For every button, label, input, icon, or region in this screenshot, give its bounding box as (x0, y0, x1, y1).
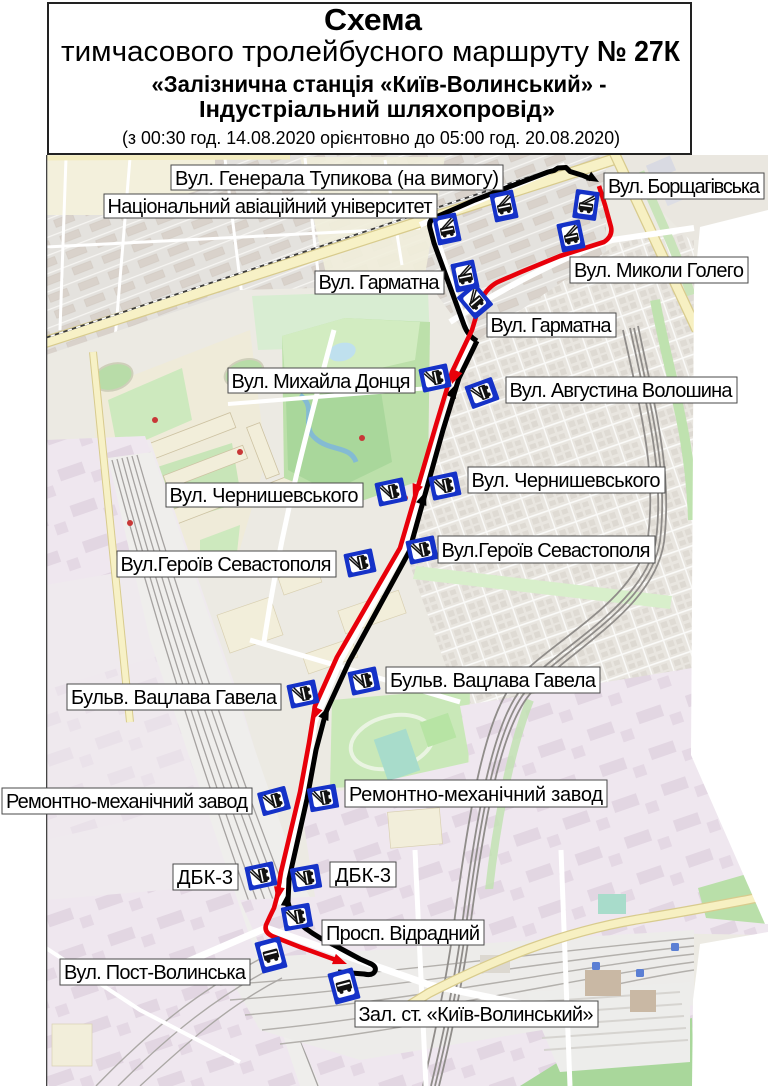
svg-text:Вул. Борщагівська: Вул. Борщагівська (608, 176, 761, 198)
svg-text:ДБК-3: ДБК-3 (177, 867, 233, 889)
svg-text:Індустріальний шляхопровід»: Індустріальний шляхопровід» (199, 96, 555, 122)
svg-text:Вул. Гарматна: Вул. Гарматна (319, 272, 441, 294)
svg-text:Бульв. Вацлава Гавела: Бульв. Вацлава Гавела (71, 687, 278, 709)
svg-text:Схема: Схема (324, 2, 423, 37)
svg-text:Національний авіаційний універ: Національний авіаційний університет (108, 196, 433, 218)
svg-text:Вул.Героїв Севастополя: Вул.Героїв Севастополя (121, 554, 332, 576)
svg-text:Ремонтно-механічний завод: Ремонтно-механічний завод (6, 791, 248, 813)
svg-text:Вул. Михайла Донця: Вул. Михайла Донця (232, 371, 411, 393)
svg-text:Ремонтно-механічний завод: Ремонтно-механічний завод (349, 784, 603, 806)
svg-text:Вул. Чернишевського: Вул. Чернишевського (472, 470, 661, 492)
svg-text:Зал. ст. «Київ-Волинський»: Зал. ст. «Київ-Волинський» (359, 1004, 594, 1026)
svg-text:Вул. Миколи Голего: Вул. Миколи Голего (574, 260, 744, 282)
svg-text:ДБК-3: ДБК-3 (335, 865, 391, 887)
svg-text:«Залізнична станція «Київ-Воли: «Залізнична станція «Київ-Волинський» - (152, 71, 607, 97)
svg-text:Вул. Чернишевського: Вул. Чернишевського (170, 485, 359, 507)
svg-text:тимчасового тролейбусного марш: тимчасового тролейбусного маршруту (61, 36, 590, 68)
svg-text:Вул. Генерала Тупикова (на вим: Вул. Генерала Тупикова (на вимогу) (175, 168, 499, 190)
svg-text:Вул. Пост-Волинська: Вул. Пост-Волинська (64, 962, 247, 984)
svg-text:(з 00:30 год. 14.08.2020 орієн: (з 00:30 год. 14.08.2020 орієнтовно до 0… (122, 127, 620, 148)
svg-text:Вул. Августина Волошина: Вул. Августина Волошина (510, 380, 734, 402)
svg-text:Просп. Відрадний: Просп. Відрадний (326, 923, 480, 945)
svg-text:Вул.Героїв Севастополя: Вул.Героїв Севастополя (442, 540, 651, 562)
svg-text:Бульв. Вацлава Гавела: Бульв. Вацлава Гавела (390, 670, 597, 692)
svg-text:№ 27К: № 27К (597, 36, 680, 68)
svg-text:Вул. Гарматна: Вул. Гарматна (491, 315, 613, 337)
